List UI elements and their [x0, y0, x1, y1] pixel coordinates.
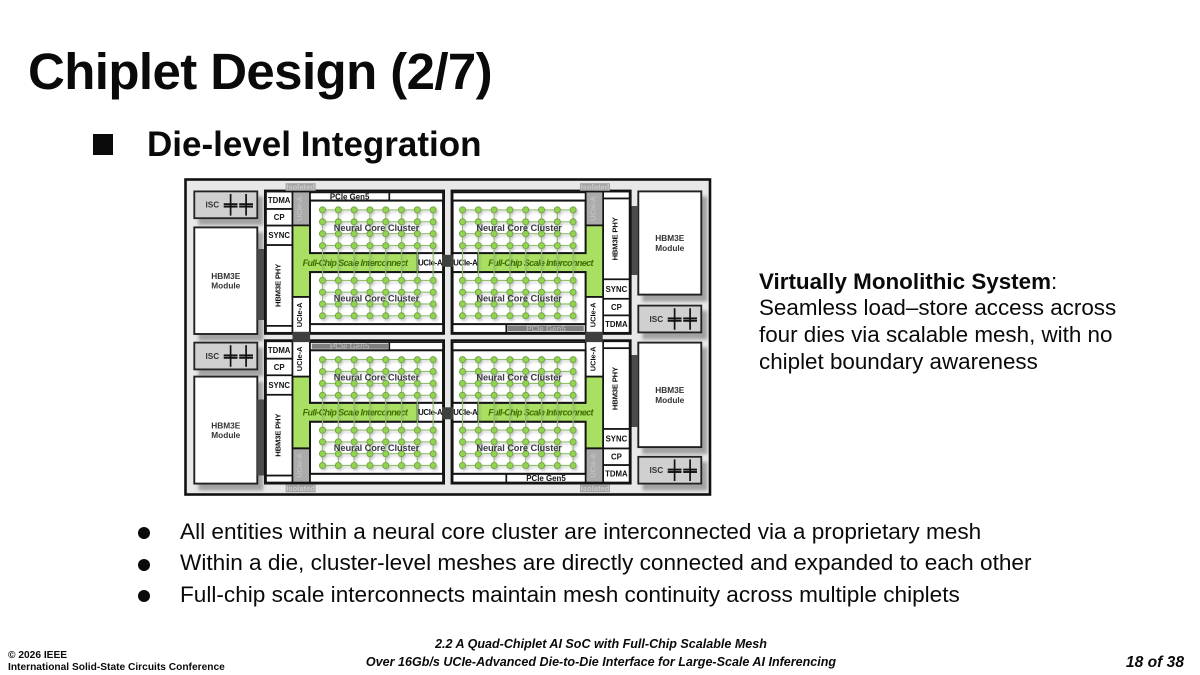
svg-text:UCIe-A: UCIe-A: [295, 346, 304, 371]
svg-text:UCIe-A: UCIe-A: [418, 408, 443, 417]
svg-text:Neural Core Cluster: Neural Core Cluster: [476, 373, 562, 383]
svg-text:ISC: ISC: [205, 201, 219, 210]
svg-text:Full-Chip Scale Interconnect: Full-Chip Scale Interconnect: [303, 258, 409, 268]
svg-text:Isolated: Isolated: [581, 183, 610, 192]
svg-text:Neural Core Cluster: Neural Core Cluster: [476, 223, 562, 233]
svg-text:SYNC: SYNC: [606, 435, 628, 444]
svg-text:TDMA: TDMA: [268, 346, 291, 355]
svg-text:CP: CP: [274, 213, 285, 222]
svg-text:Neural Core Cluster: Neural Core Cluster: [334, 443, 420, 453]
svg-text:Isolated: Isolated: [581, 484, 610, 493]
svg-text:Module: Module: [211, 430, 240, 440]
svg-text:HBM3E PHY: HBM3E PHY: [611, 217, 620, 260]
svg-text:HBM3E PHY: HBM3E PHY: [273, 264, 282, 307]
svg-text:SYNC: SYNC: [268, 231, 290, 240]
svg-text:TDMA: TDMA: [605, 470, 628, 479]
svg-text:UCIe-A: UCIe-A: [588, 346, 597, 371]
svg-text:HBM3E: HBM3E: [655, 385, 685, 395]
svg-text:TDMA: TDMA: [605, 320, 628, 329]
svg-text:CP: CP: [274, 363, 285, 372]
svg-text:UCIe-A: UCIe-A: [453, 259, 478, 268]
svg-text:UCIe-A: UCIe-A: [295, 196, 304, 221]
svg-text:Module: Module: [211, 281, 240, 291]
svg-text:UCIe-A: UCIe-A: [588, 302, 597, 327]
svg-text:Neural Core Cluster: Neural Core Cluster: [334, 373, 420, 383]
svg-text:UCIe-A: UCIe-A: [295, 302, 304, 327]
svg-text:HBM3E: HBM3E: [655, 233, 685, 243]
svg-text:Module: Module: [655, 395, 684, 405]
svg-text:ISC: ISC: [649, 315, 663, 324]
svg-text:UCIe-A: UCIe-A: [418, 259, 443, 268]
svg-text:ISC: ISC: [649, 466, 663, 475]
svg-text:HBM3E PHY: HBM3E PHY: [273, 414, 282, 457]
svg-text:TDMA: TDMA: [268, 196, 291, 205]
svg-text:UCIe-A: UCIe-A: [588, 452, 597, 477]
svg-text:HBM3E PHY: HBM3E PHY: [611, 367, 620, 410]
svg-text:PCIe Gen5: PCIe Gen5: [526, 324, 566, 333]
svg-text:UCIe-A: UCIe-A: [295, 452, 304, 477]
svg-text:Neural Core Cluster: Neural Core Cluster: [476, 293, 562, 303]
svg-text:CP: CP: [611, 453, 622, 462]
svg-text:Isolated: Isolated: [286, 484, 315, 493]
svg-text:Neural Core Cluster: Neural Core Cluster: [476, 443, 562, 453]
svg-text:Full-Chip Scale Interconnect: Full-Chip Scale Interconnect: [303, 408, 409, 418]
svg-text:UCIe-A: UCIe-A: [588, 196, 597, 221]
svg-text:CP: CP: [611, 303, 622, 312]
svg-text:UCIe-A: UCIe-A: [453, 408, 478, 417]
svg-text:HBM3E: HBM3E: [211, 271, 241, 281]
svg-text:HBM3E: HBM3E: [211, 420, 241, 430]
svg-text:ISC: ISC: [205, 352, 219, 361]
svg-text:Module: Module: [655, 243, 684, 253]
svg-text:PCIe Gen5: PCIe Gen5: [526, 474, 566, 483]
svg-text:Isolated: Isolated: [286, 183, 315, 192]
svg-text:Neural Core Cluster: Neural Core Cluster: [334, 223, 420, 233]
svg-text:SYNC: SYNC: [268, 381, 290, 390]
svg-text:SYNC: SYNC: [606, 285, 628, 294]
svg-text:Neural Core Cluster: Neural Core Cluster: [334, 293, 420, 303]
